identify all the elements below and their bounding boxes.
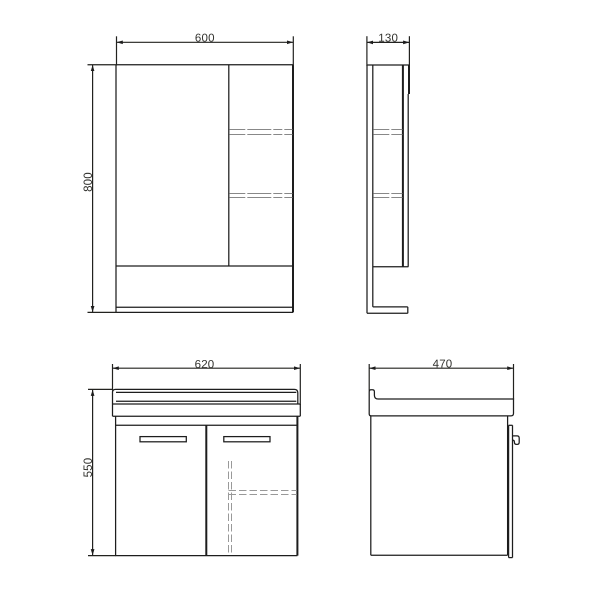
svg-text:620: 620 — [195, 359, 215, 371]
svg-text:600: 600 — [195, 33, 215, 45]
svg-text:470: 470 — [433, 358, 453, 370]
svg-text:800: 800 — [83, 172, 95, 192]
svg-text:550: 550 — [83, 458, 95, 478]
svg-text:130: 130 — [378, 33, 398, 45]
